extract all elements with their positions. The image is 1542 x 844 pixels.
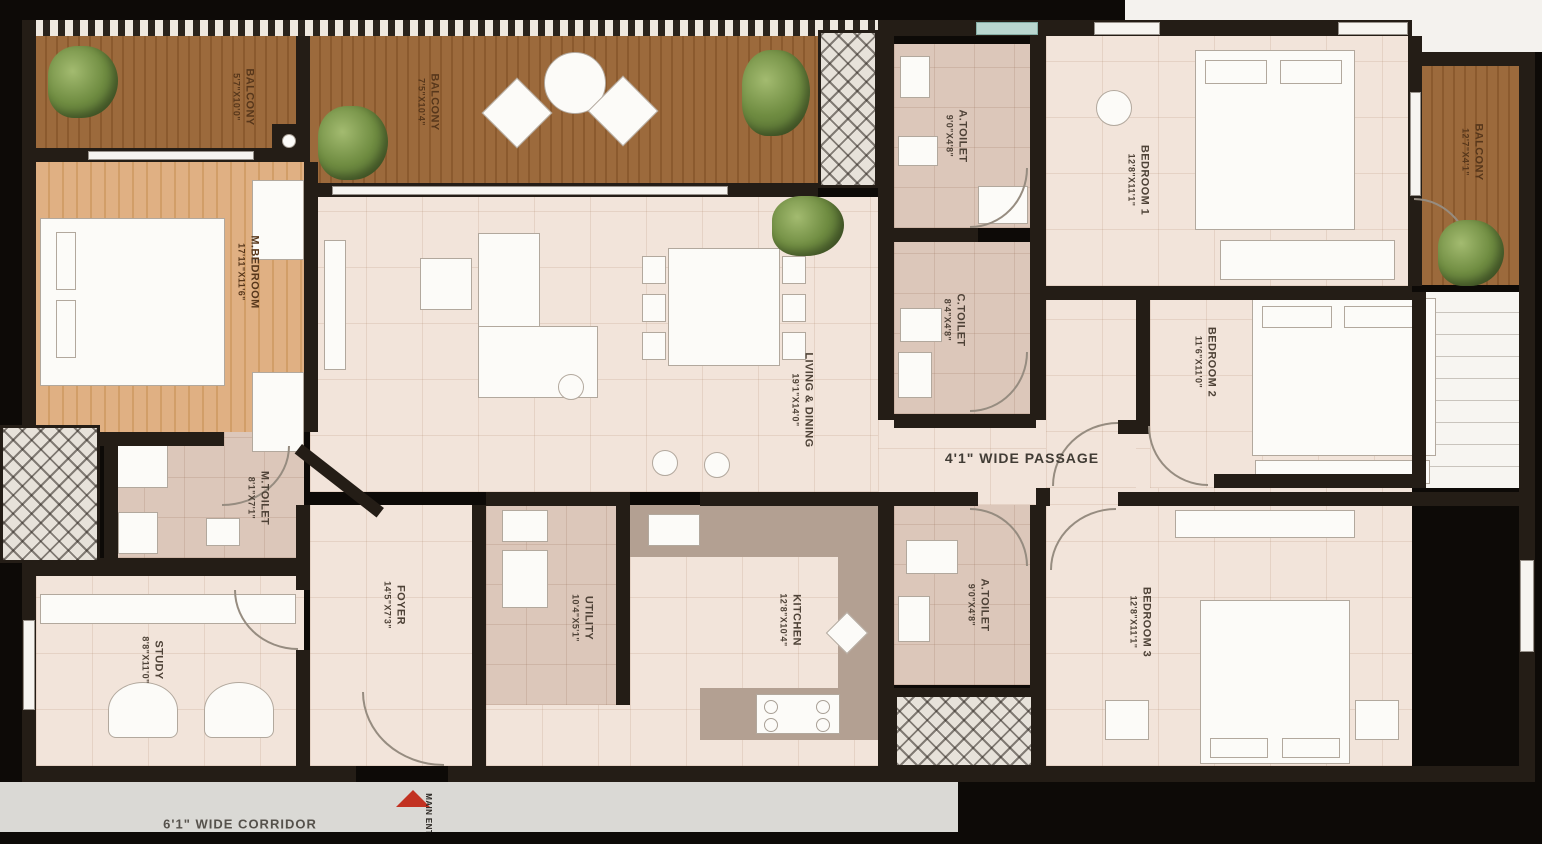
side-table — [558, 374, 584, 400]
window-study — [23, 620, 35, 710]
wall-bottom-right — [448, 766, 1535, 782]
page-corner-tr — [1412, 0, 1542, 52]
label-balcony-right: BALCONY12'7"X4'1" — [1460, 123, 1485, 180]
m-bedroom-wardrobe — [252, 372, 304, 452]
window-top-teal — [976, 22, 1038, 35]
window-top-1 — [1094, 22, 1160, 35]
label-bedroom2: BEDROOM 211'6"X11'0" — [1193, 327, 1218, 397]
dining-chair — [782, 256, 806, 284]
marker-column-dot — [282, 134, 296, 148]
wall-mbedroom-right — [304, 162, 318, 432]
a-toilet-bottom-wc — [898, 596, 930, 642]
utility-lower-floor — [486, 705, 630, 766]
label-corridor: 6'1" WIDE CORRIDOR — [163, 817, 317, 832]
wall-bedroom2-left — [1136, 300, 1150, 428]
wall-right-outer — [1519, 52, 1535, 766]
window-mbedroom — [88, 151, 254, 160]
hob-burner — [764, 700, 778, 714]
floor-plan: BALCONY5'7"X10'0" BALCONY7'5"X10'4" BALC… — [0, 0, 1542, 844]
bedroom1-wardrobe — [1220, 240, 1395, 280]
wall-bottom-left — [22, 766, 356, 782]
wall-balcony-right-top — [1412, 52, 1535, 66]
wall-foyer-right — [472, 505, 486, 766]
wall-atoilet-top-bottom — [894, 228, 978, 242]
wall-kitchen-top-right — [700, 492, 878, 506]
m-toilet-wc — [118, 512, 158, 554]
label-balcony-top: BALCONY7'5"X10'4" — [416, 73, 441, 130]
wall-foyer-left-lower — [296, 650, 310, 766]
study-chair — [204, 682, 274, 738]
window-top-2 — [1338, 22, 1408, 35]
wall-toilets-right — [1030, 36, 1046, 420]
window-living-balcony — [332, 186, 728, 195]
label-study: STUDY8'8"X11'0" — [140, 636, 165, 683]
wall-utility-right — [616, 505, 630, 705]
wall-kitchen-top-left — [486, 492, 630, 506]
label-m-bedroom: M.BEDROOM17'11"X11'6" — [236, 235, 261, 308]
kitchen-sink — [648, 514, 700, 546]
bedroom1-pillow — [1280, 60, 1342, 84]
washing-machine — [502, 550, 548, 608]
wall-passage-bottom-left — [878, 492, 978, 506]
window-bedroom3 — [1520, 560, 1534, 652]
label-passage: 4'1" WIDE PASSAGE — [945, 450, 1099, 466]
dining-chair — [642, 294, 666, 322]
coffee-table — [420, 258, 472, 310]
wall-foyer-left-upper — [296, 505, 310, 590]
label-m-toilet: M.TOILET8'1"X7'1" — [246, 471, 271, 525]
bedroom3-pillow — [1282, 738, 1340, 758]
label-c-toilet: C.TOILET8'4"X4'8" — [942, 293, 967, 346]
a-toilet-top-basin — [898, 136, 938, 166]
label-a-toilet-top: A.TOILET9'0"X4'8" — [944, 109, 969, 162]
shaft-bottom — [894, 694, 1034, 768]
bedroom1-stool — [1096, 90, 1132, 126]
wall-bedroom1-bottom — [1046, 286, 1412, 300]
dining-chair — [782, 294, 806, 322]
bedroom2-pillow — [1262, 306, 1332, 328]
bedroom2-window-ledge — [1426, 292, 1519, 488]
bedroom3-pillow — [1210, 738, 1268, 758]
dining-chair — [642, 256, 666, 284]
wall-passage-top-stub — [1118, 420, 1150, 434]
pouf — [704, 452, 730, 478]
bottom-band — [0, 832, 1542, 844]
bedroom3-nightstand — [1355, 700, 1399, 740]
c-toilet-wc — [898, 352, 932, 398]
label-bedroom1: BEDROOM 112'8"X11'1" — [1126, 145, 1151, 215]
a-toilet-top-wc — [900, 56, 930, 98]
label-foyer: FOYER14'5"X7'3" — [382, 581, 407, 629]
wall-spine-upper — [878, 30, 894, 420]
hob-burner — [816, 700, 830, 714]
window-bedroom1-balcony — [1410, 92, 1421, 196]
a-toilet-bottom-basin — [906, 540, 958, 574]
hob-burner — [764, 718, 778, 732]
hob-burner — [816, 718, 830, 732]
utility-shelf — [502, 510, 548, 542]
m-toilet-shower — [112, 442, 168, 488]
dining-chair — [642, 332, 666, 360]
label-living-dining: LIVING & DINING19'1"X14'0" — [790, 352, 815, 447]
bedroom1-pillow — [1205, 60, 1267, 84]
wall-bedroom2-bottom — [1214, 474, 1412, 488]
pouf — [652, 450, 678, 476]
label-bedroom3: BEDROOM 312'8"X11'1" — [1128, 587, 1153, 657]
label-balcony-top-left: BALCONY5'7"X10'0" — [231, 68, 256, 125]
label-kitchen: KITCHEN12'8"X10'4" — [778, 593, 803, 646]
wall-bedroom2-right — [1412, 292, 1426, 488]
wall-ctoilet-bottom — [894, 414, 1036, 428]
wall-spine-lower — [878, 505, 894, 766]
study-chair — [108, 682, 178, 738]
wall-mtoilet-left — [104, 432, 118, 558]
shaft-top — [818, 30, 878, 188]
label-utility: UTILITY10'4"X5'1" — [570, 594, 595, 642]
bedroom3-wardrobe — [1175, 510, 1355, 538]
wall-bedroom3-top — [1118, 492, 1519, 506]
bedroom3-nightstand — [1105, 700, 1149, 740]
tv-unit — [324, 240, 346, 370]
m-bedroom-pillow — [56, 300, 76, 358]
wall-passage-pillar — [1036, 488, 1050, 506]
m-toilet-basin — [206, 518, 240, 546]
c-toilet-basin — [900, 308, 942, 342]
label-a-toilet-bottom: A.TOILET9'0"X4'8" — [966, 578, 991, 631]
m-bedroom-pillow — [56, 232, 76, 290]
corridor-floor — [0, 782, 958, 832]
dining-table — [668, 248, 780, 366]
shaft-left — [0, 425, 100, 563]
bedroom2-pillow — [1344, 306, 1414, 328]
